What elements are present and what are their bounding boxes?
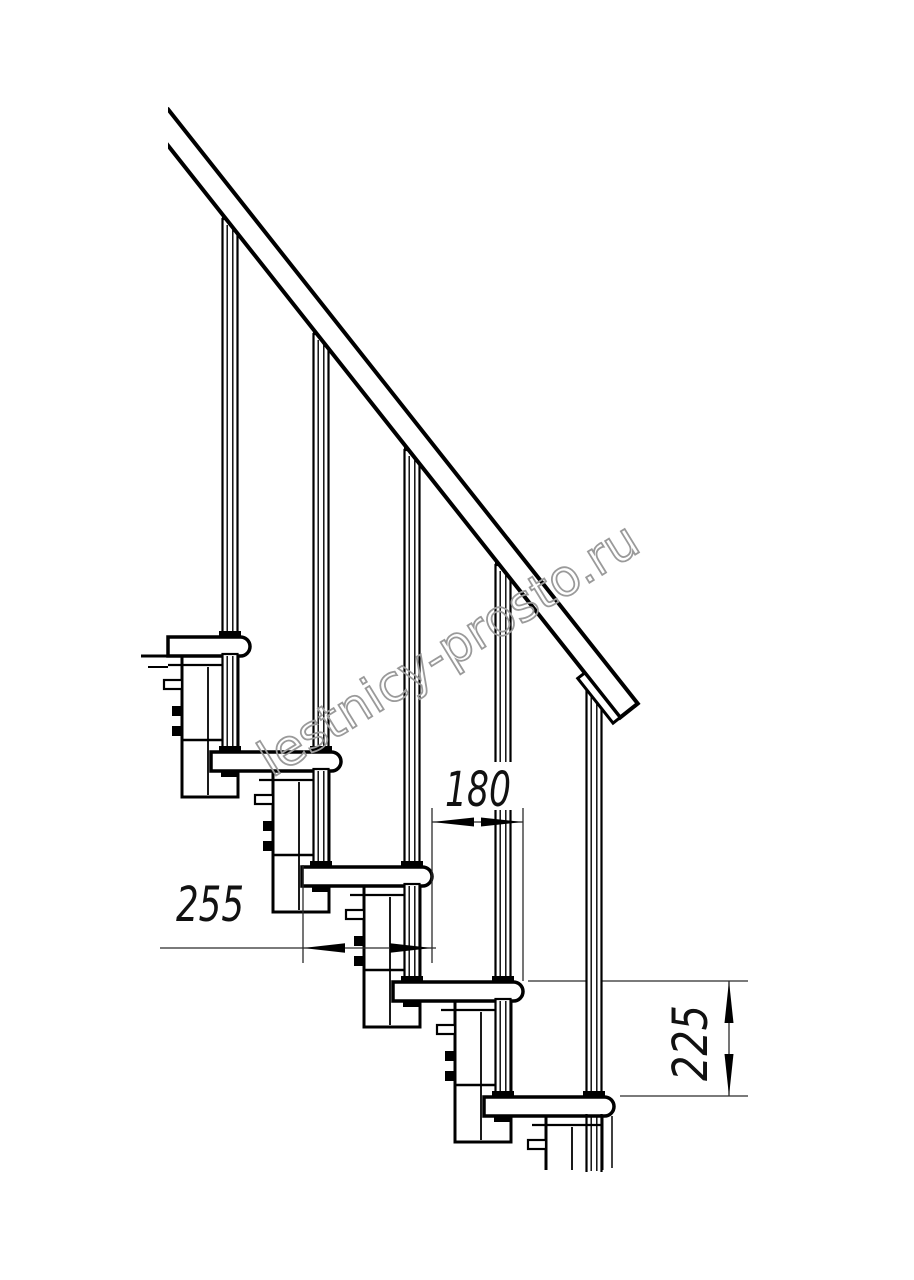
mount-tab bbox=[528, 1140, 546, 1149]
mount-tab bbox=[346, 910, 364, 919]
bolt-icon bbox=[354, 936, 364, 946]
baluster-foot bbox=[492, 1091, 514, 1097]
baluster-5 bbox=[583, 676, 605, 1172]
bolt-icon bbox=[263, 841, 273, 851]
clipped-structure-stub bbox=[141, 656, 168, 667]
baluster-foot bbox=[219, 746, 241, 752]
baluster-foot bbox=[401, 861, 423, 867]
nut-icon bbox=[221, 771, 239, 777]
tread-5 bbox=[484, 1097, 614, 1116]
baluster-2 bbox=[310, 330, 332, 892]
mount-tab bbox=[437, 1025, 455, 1034]
handrail bbox=[144, 110, 638, 723]
dimension-label-255: 255 bbox=[176, 877, 244, 933]
nut-icon bbox=[403, 1001, 421, 1007]
dimension-label-225: 225 bbox=[663, 1005, 719, 1081]
baluster-1 bbox=[219, 215, 241, 777]
drawing-canvas: 255 180 225 lestnicy-prosto.ru bbox=[0, 0, 914, 1280]
baluster-foot bbox=[310, 861, 332, 867]
bolt-icon bbox=[172, 706, 182, 716]
dimension-label-180: 180 bbox=[445, 762, 511, 818]
bolt-icon bbox=[445, 1071, 455, 1081]
bolt-icon bbox=[263, 821, 273, 831]
baluster-3 bbox=[401, 445, 423, 1007]
baluster-foot bbox=[219, 631, 241, 637]
arrow-down-icon bbox=[725, 1054, 734, 1096]
bolt-icon bbox=[354, 956, 364, 966]
baluster-foot bbox=[401, 976, 423, 982]
dimension-step-rise: 225 bbox=[663, 981, 734, 1096]
baluster-foot bbox=[492, 976, 514, 982]
bolt-icon bbox=[172, 726, 182, 736]
staircase-elevation-drawing: 255 180 225 lestnicy-prosto.ru bbox=[0, 0, 914, 1280]
mount-tab bbox=[164, 680, 182, 689]
mount-tab bbox=[255, 795, 273, 804]
baluster-foot bbox=[583, 1091, 605, 1097]
support-module-5 bbox=[528, 1116, 612, 1170]
arrow-up-icon bbox=[725, 981, 734, 1023]
arrow-left-icon bbox=[432, 818, 474, 827]
dimension-step-overlap: 180 bbox=[432, 762, 523, 827]
bolt-icon bbox=[445, 1051, 455, 1061]
nut-icon bbox=[494, 1116, 512, 1122]
nut-icon bbox=[312, 886, 330, 892]
arrow-left-icon bbox=[303, 943, 345, 953]
